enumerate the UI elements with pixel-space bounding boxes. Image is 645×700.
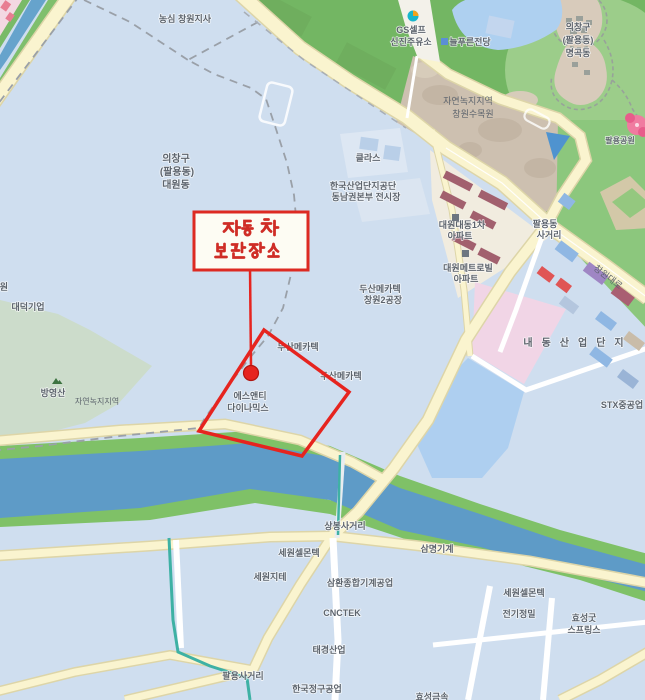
svg-text:스프링스: 스프링스 <box>567 624 601 635</box>
svg-text:한국산업단지공단: 한국산업단지공단 <box>330 180 397 191</box>
svg-text:CNCTEK: CNCTEK <box>323 608 361 618</box>
svg-text:대덕기업: 대덕기업 <box>11 301 44 312</box>
svg-text:세원셀몬텍: 세원셀몬텍 <box>503 587 544 598</box>
svg-text:의창구: 의창구 <box>566 21 591 32</box>
svg-text:자연녹지지역: 자연녹지지역 <box>443 96 493 106</box>
svg-text:삼명기계: 삼명기계 <box>420 543 453 554</box>
svg-text:창원2공장: 창원2공장 <box>364 294 403 305</box>
svg-text:테크원: 테크원 <box>0 281 8 292</box>
svg-text:동남권본부 전시장: 동남권본부 전시장 <box>332 191 401 202</box>
svg-text:세원셀몬텍: 세원셀몬텍 <box>278 547 319 558</box>
svg-text:클라스: 클라스 <box>356 152 382 163</box>
svg-text:농심 창원지사: 농심 창원지사 <box>159 13 212 24</box>
svg-text:태경산업: 태경산업 <box>312 644 345 655</box>
svg-text:내동산업단지: 내동산업단지 <box>523 336 632 349</box>
svg-text:두산메카텍: 두산메카텍 <box>359 283 400 294</box>
svg-text:STX중공업: STX중공업 <box>601 399 643 410</box>
svg-text:한국정구공업: 한국정구공업 <box>292 683 342 694</box>
svg-text:팔용사거리: 팔용사거리 <box>222 670 263 681</box>
svg-text:삼환종합기계공업: 삼환종합기계공업 <box>327 577 393 588</box>
svg-text:효성굿: 효성굿 <box>572 612 598 623</box>
svg-text:사거리: 사거리 <box>537 229 562 240</box>
svg-text:방영산: 방영산 <box>41 387 67 398</box>
svg-text:대원동: 대원동 <box>162 178 190 191</box>
svg-text:다이나믹스: 다이나믹스 <box>227 402 269 413</box>
svg-text:의창구: 의창구 <box>162 152 190 165</box>
svg-text:GS셀프: GS셀프 <box>396 24 426 35</box>
svg-text:대원대동1차: 대원대동1차 <box>439 219 486 230</box>
svg-text:팔용공원: 팔용공원 <box>605 135 634 145</box>
svg-text:명곡동: 명곡동 <box>566 47 591 58</box>
svg-text:효성금속: 효성금속 <box>415 691 448 700</box>
svg-text:자연녹지지역: 자연녹지지역 <box>75 396 119 406</box>
svg-text:신진주유소: 신진주유소 <box>390 36 432 47</box>
svg-text:(팔용동): (팔용동) <box>160 165 194 178</box>
svg-text:세원지테: 세원지테 <box>253 571 286 582</box>
svg-text:대원메트로빌: 대원메트로빌 <box>443 262 493 273</box>
svg-text:창원수목원: 창원수목원 <box>452 109 493 119</box>
svg-text:늘푸른전당: 늘푸른전당 <box>449 36 491 47</box>
svg-text:상봉사거리: 상봉사거리 <box>324 520 365 531</box>
svg-text:(팔용동): (팔용동) <box>563 34 594 45</box>
svg-text:전기정밀: 전기정밀 <box>502 608 535 619</box>
svg-text:에스앤티: 에스앤티 <box>233 390 266 401</box>
svg-text:팔용동: 팔용동 <box>533 218 558 229</box>
svg-text:아파트: 아파트 <box>448 230 474 241</box>
svg-text:아파트: 아파트 <box>454 273 480 284</box>
